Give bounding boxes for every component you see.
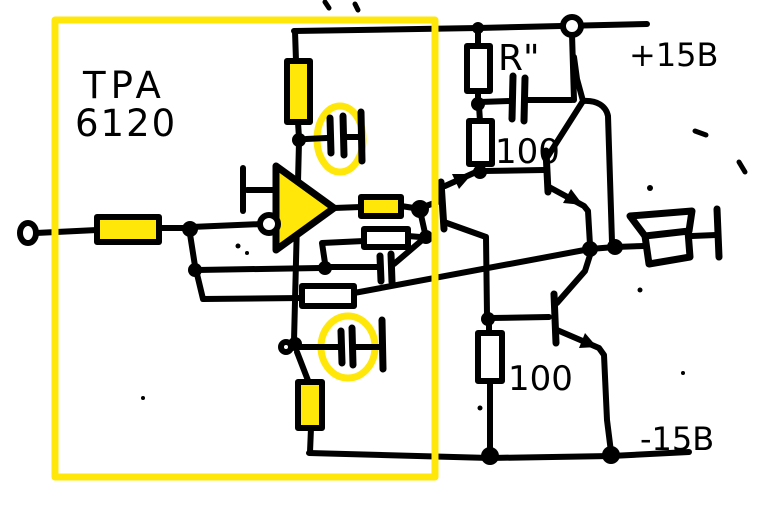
- input-terminal-circle: [20, 223, 36, 243]
- series-resistor-label: R": [498, 38, 540, 79]
- junction-dot: [602, 446, 620, 464]
- junction-dot: [471, 97, 485, 111]
- pen-mark: [325, 2, 329, 8]
- junction-dot: [411, 200, 429, 218]
- junction-dot: [481, 312, 495, 326]
- input-node-drop-wire: [190, 234, 195, 266]
- pen-mark: [695, 131, 706, 135]
- opamp-inverting-bubble: [260, 215, 278, 233]
- bypass-cap-bottom-plate1: [341, 331, 342, 363]
- positive-rail-label: +15B: [629, 36, 718, 74]
- negative-supply-rail-lead: [310, 428, 311, 452]
- bypass-cap-bottom-ground-bar: [382, 320, 383, 369]
- opamp-output-wire: [334, 207, 361, 208]
- pen-mark: [245, 251, 249, 255]
- emitter-resistor-lower: [478, 333, 502, 381]
- emitter-resistor-upper: [469, 121, 492, 164]
- pen-mark: [141, 396, 145, 400]
- inverting-input-wire: [191, 224, 262, 227]
- negative-supply-resistor: [298, 382, 322, 428]
- junction-dot: [473, 165, 487, 179]
- feedback-cap-plate2: [391, 254, 392, 282]
- junction-dot: [182, 221, 198, 237]
- input-wire: [36, 230, 97, 233]
- transistor3-collector-wire: [557, 252, 591, 303]
- positive-supply-drop-wire: [295, 31, 296, 61]
- feedback-cap-plate1: [380, 256, 381, 281]
- circuit-schematic: TPA 6120 R" 100 100 +15B -15B: [0, 0, 774, 510]
- opamp-triangle: [276, 166, 334, 250]
- feedback-lower-wire: [197, 274, 302, 299]
- negative-rail-wire: [309, 452, 689, 458]
- bypass-cap-top-plate1: [330, 118, 331, 153]
- feedback-lower-resistor: [302, 286, 354, 306]
- output-series-resistor: [361, 197, 401, 216]
- chip-label-line1: TPA: [82, 64, 166, 107]
- bypass-cap-bottom-plate2: [352, 328, 353, 365]
- feedback-resistor: [364, 229, 408, 247]
- opamp-negative-supply-wire: [294, 142, 299, 341]
- speaker-cone: [630, 211, 692, 236]
- junction-dot: [318, 261, 332, 275]
- pen-mark: [681, 371, 685, 375]
- pen-mark: [478, 406, 483, 411]
- junction-dot: [582, 241, 598, 257]
- positive-supply-resistor: [287, 61, 310, 122]
- pen-mark: [236, 244, 241, 249]
- transistor3-base-wire: [491, 317, 549, 318]
- speaker-terminal-bar: [717, 209, 719, 257]
- pen-mark: [638, 288, 643, 293]
- junction-dot: [292, 133, 306, 147]
- pen-mark: [355, 4, 358, 10]
- upper-100-label: 100: [495, 132, 560, 172]
- negative-supply-resistor-lead: [297, 352, 309, 383]
- speaker-out-lead: [692, 235, 716, 236]
- junction-dot: [481, 447, 499, 465]
- positive-rail-wire: [294, 24, 647, 31]
- top-bypass-cap-left-lead: [306, 138, 327, 139]
- schematic-canvas: TPA 6120 R" 100 100 +15B -15B: [0, 0, 774, 510]
- pen-mark: [739, 162, 745, 172]
- input-resistor: [97, 217, 159, 242]
- junction-dot: [607, 239, 623, 255]
- top-cap-plate2: [524, 78, 525, 121]
- lower-100-label: 100: [508, 359, 573, 399]
- junction-dot: [188, 263, 202, 277]
- bypass-cap-top-ground-bar: [361, 112, 362, 161]
- junction-dot: [419, 230, 433, 244]
- junction-dot: [472, 22, 484, 34]
- feedback-resistor-left-lead: [322, 241, 364, 263]
- top-cap-plate1: [512, 76, 513, 119]
- output-feedback-diagonal-wire: [354, 246, 644, 293]
- chip-label-line2: 6120: [75, 102, 177, 145]
- junction-dot: [288, 337, 302, 351]
- feedback-node-wire: [197, 268, 320, 270]
- pen-mark: [647, 185, 653, 191]
- series-resistor-r-top: [467, 46, 490, 91]
- positive-rail-terminal-circle: [563, 17, 581, 35]
- bypass-cap-top-plate2: [343, 116, 344, 155]
- negative-rail-label: -15B: [640, 420, 714, 458]
